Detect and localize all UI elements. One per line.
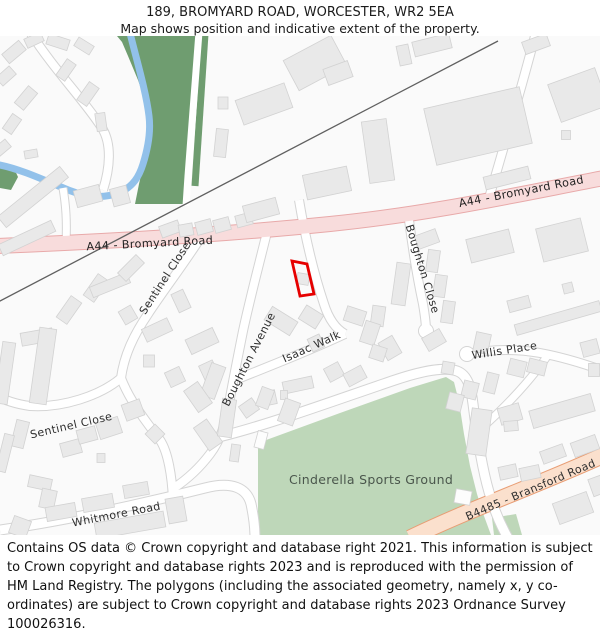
copyright-text: Contains OS data © Crown copyright and d… bbox=[7, 539, 593, 634]
building bbox=[144, 355, 155, 367]
title-block: 189, BROMYARD ROAD, WORCESTER, WR2 5EA M… bbox=[0, 0, 600, 36]
map-canvas: A44 - Bromyard Road A44 - Bromyard Road … bbox=[0, 36, 600, 535]
page-title: 189, BROMYARD ROAD, WORCESTER, WR2 5EA bbox=[0, 5, 600, 21]
building bbox=[504, 420, 519, 431]
building bbox=[95, 112, 107, 131]
copyright-footer: Contains OS data © Crown copyright and d… bbox=[0, 535, 600, 638]
building bbox=[165, 496, 187, 524]
building bbox=[229, 444, 240, 462]
building bbox=[218, 97, 228, 109]
building bbox=[454, 489, 472, 506]
building bbox=[441, 361, 455, 375]
building bbox=[214, 128, 229, 157]
building bbox=[562, 131, 571, 140]
building bbox=[562, 282, 574, 294]
area-label-cinderella-sports-ground: Cinderella Sports Ground bbox=[289, 472, 453, 487]
building bbox=[589, 364, 600, 377]
road bbox=[63, 188, 66, 244]
page-subtitle: Map shows position and indicative extent… bbox=[0, 21, 600, 36]
building bbox=[507, 358, 527, 378]
building bbox=[24, 149, 38, 159]
building bbox=[97, 454, 105, 463]
property-map: A44 - Bromyard Road A44 - Bromyard Road … bbox=[0, 36, 600, 535]
building bbox=[441, 300, 456, 323]
